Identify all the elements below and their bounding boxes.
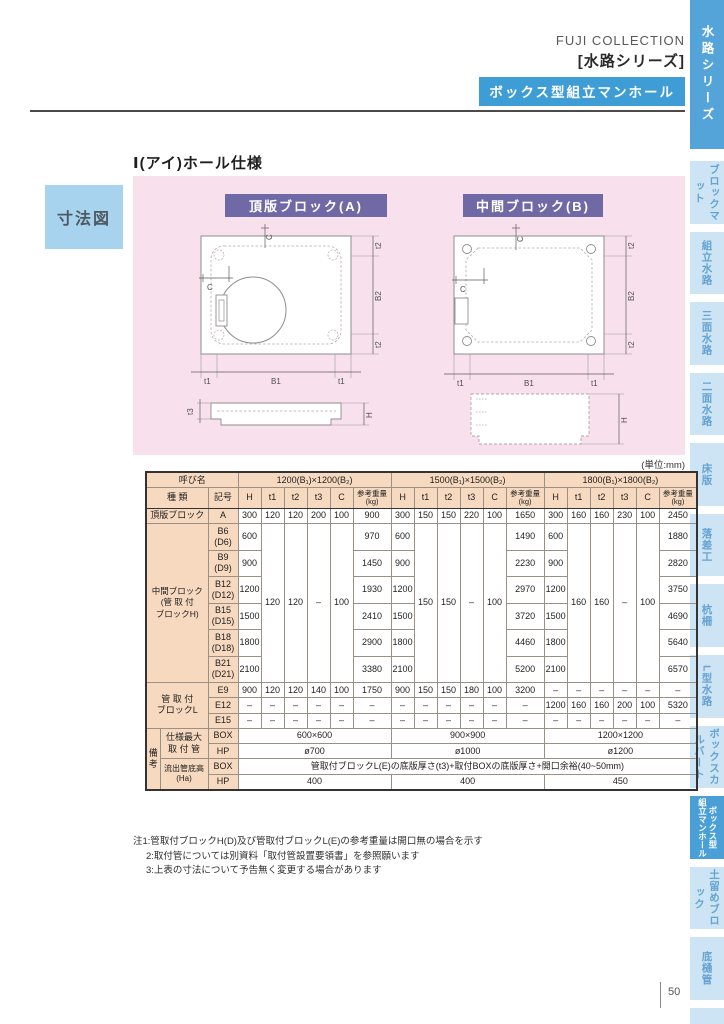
sidebar-tab-series: 水路シリーズ: [690, 0, 724, 149]
footnote-1: 注1:管取付ブロックH(D)及び管取付ブロックL(E)の参考重量は開口無の場合を…: [133, 835, 483, 850]
footnotes: 注1:管取付ブロックH(D)及び管取付ブロックL(E)の参考重量は開口無の場合を…: [133, 835, 483, 879]
row-lblock-e12: E12 –––––– –––––– 12001601602001005320: [146, 698, 697, 713]
svg-text:B1: B1: [271, 377, 281, 386]
row-code: A: [208, 508, 238, 523]
col-c: C: [483, 488, 506, 509]
section-title: Ⅰ(アイ)ホール仕様: [133, 152, 263, 173]
max-pipe-label: 仕様最大 取 付 管: [160, 728, 208, 759]
col-t2: t2: [284, 488, 307, 509]
group-1800-header: 1800(B₁)×1800(B₂): [544, 472, 697, 488]
col-t3: t3: [460, 488, 483, 509]
col-t1: t1: [567, 488, 590, 509]
svg-text:t1: t1: [338, 377, 345, 386]
svg-text:B2: B2: [627, 291, 636, 301]
sub-header-row: 種 類 記号 H t1 t2 t3 C 参考重量(kg) H t1 t2 t3 …: [146, 488, 697, 509]
col-t1: t1: [261, 488, 284, 509]
svg-text:C: C: [207, 283, 213, 292]
dimension-spec-table: 呼び名 1200(B₁)×1200(B₂) 1500(B₁)×1500(B₂) …: [145, 471, 698, 791]
sidebar-tab-kumitate-suiro: 組立水路: [690, 232, 724, 295]
lblock-label: 管 取 付 ブロックL: [146, 683, 208, 729]
kigo-header: 記号: [208, 488, 238, 509]
sidebar-tab-nimen-suiro: 二面水路: [690, 373, 724, 436]
svg-text:C: C: [265, 234, 274, 240]
col-c: C: [330, 488, 353, 509]
col-weight: 参考重量(kg): [506, 488, 544, 509]
group-1200-header: 1200(B₁)×1200(B₂): [238, 472, 391, 488]
group-header-row: 呼び名 1200(B₁)×1200(B₂) 1500(B₁)×1500(B₂) …: [146, 472, 697, 488]
svg-text:H: H: [620, 417, 629, 423]
product-badge: ボックス型組立マンホール: [479, 77, 685, 106]
svg-text:t1: t1: [204, 377, 211, 386]
row-remarks-max-hp: HP ø700 ø1000 ø1200: [146, 744, 697, 759]
col-h: H: [238, 488, 261, 509]
row-label: 頂版ブロック: [146, 508, 208, 523]
col-t2: t2: [437, 488, 460, 509]
unit-note: (単位:mm): [641, 457, 685, 471]
svg-text:t3: t3: [186, 408, 195, 415]
col-t3: t3: [307, 488, 330, 509]
row-code: B6 (D6): [208, 524, 238, 551]
row-middle-b6: 中間ブロック (管 取 付 ブロックH) B6 (D6) 600 120 120…: [146, 524, 697, 551]
row-remarks-flow-box: 流出管底高 (Ha) BOX 管取付ブロックL(E)の底版厚さ(t3)+取付BO…: [146, 759, 697, 774]
svg-text:H: H: [365, 412, 374, 418]
middle-block-label: 中間ブロック (管 取 付 ブロックH): [146, 524, 208, 683]
catalog-page: FUJI COLLECTION [水路シリーズ] ボックス型組立マンホール 水路…: [0, 0, 724, 1024]
page-number: 50: [660, 982, 680, 1008]
brand-text: FUJI COLLECTION: [556, 33, 685, 48]
svg-text:t2: t2: [627, 242, 636, 249]
svg-text:t1: t1: [457, 379, 464, 388]
col-c: C: [636, 488, 659, 509]
row-top-slab: 頂版ブロック A 300120120200100900 300150150220…: [146, 508, 697, 523]
group-1500-header: 1500(B₁)×1500(B₂): [391, 472, 544, 488]
diagram-panel: 頂版ブロック(A) 中間ブロック(B) C C: [133, 176, 685, 455]
col-t2: t2: [590, 488, 613, 509]
active-tab-line2: 組立マンホール: [697, 798, 706, 858]
remarks-label: 備 考: [146, 728, 160, 790]
header-rule: [30, 110, 685, 112]
yobina-header: 呼び名: [146, 472, 238, 488]
svg-text:C: C: [460, 285, 466, 294]
col-weight: 参考重量(kg): [659, 488, 697, 509]
footnote-2: 2:取付管については別資料「取付管設置要領書」を参照願います: [133, 850, 483, 865]
diagram-b-badge: 中間ブロック(B): [463, 194, 603, 217]
svg-text:C: C: [516, 236, 525, 242]
svg-text:B2: B2: [374, 291, 383, 301]
svg-text:t1: t1: [591, 379, 598, 388]
sidebar-filler: [690, 1008, 724, 1024]
dimension-drawing-label: 寸法図: [45, 185, 123, 249]
outflow-label: 流出管底高 (Ha): [160, 759, 208, 790]
intermediate-block-drawing: C C t2 B2 t2 t1 B1 t1: [426, 218, 656, 453]
row-lblock-e15: E15 –––––– –––––– ––––––: [146, 713, 697, 728]
sidebar-tab-dodome-block: 土留めブロック: [690, 867, 724, 930]
svg-text:t2: t2: [374, 341, 383, 348]
series-title: [水路シリーズ]: [578, 50, 685, 71]
diagram-a-badge: 頂版ブロック(A): [225, 194, 387, 217]
footnote-3: 3:上表の寸法について予告無く変更する場合があります: [133, 864, 483, 879]
sidebar-tab-box-manhole-active: 組立マンホール ボックス型: [690, 796, 724, 859]
shurui-header: 種 類: [146, 488, 208, 509]
col-h: H: [391, 488, 414, 509]
top-slab-block-drawing: C C t2 B2 t2 t1 B1 t1: [173, 218, 403, 453]
row-lblock-e9: 管 取 付 ブロックL E9 9001201201401001750 90015…: [146, 683, 697, 698]
sidebar-tab-sanmen-suiro: 三面水路: [690, 302, 724, 365]
sidebar-tab-teihikan: 底樋管: [690, 937, 724, 1000]
svg-text:B1: B1: [524, 379, 534, 388]
row-remarks-max-box: 備 考 仕様最大 取 付 管 BOX 600×600 900×900 1200×…: [146, 728, 697, 743]
row-remarks-flow-hp: HP 400 400 450: [146, 774, 697, 790]
sidebar-tab-block-mat: ブロックマット: [690, 161, 724, 224]
col-h: H: [544, 488, 567, 509]
active-tab-line1: ボックス型: [708, 806, 717, 849]
col-weight: 参考重量(kg): [353, 488, 391, 509]
svg-text:t2: t2: [627, 341, 636, 348]
col-t3: t3: [613, 488, 636, 509]
col-t1: t1: [414, 488, 437, 509]
svg-text:t2: t2: [374, 242, 383, 249]
